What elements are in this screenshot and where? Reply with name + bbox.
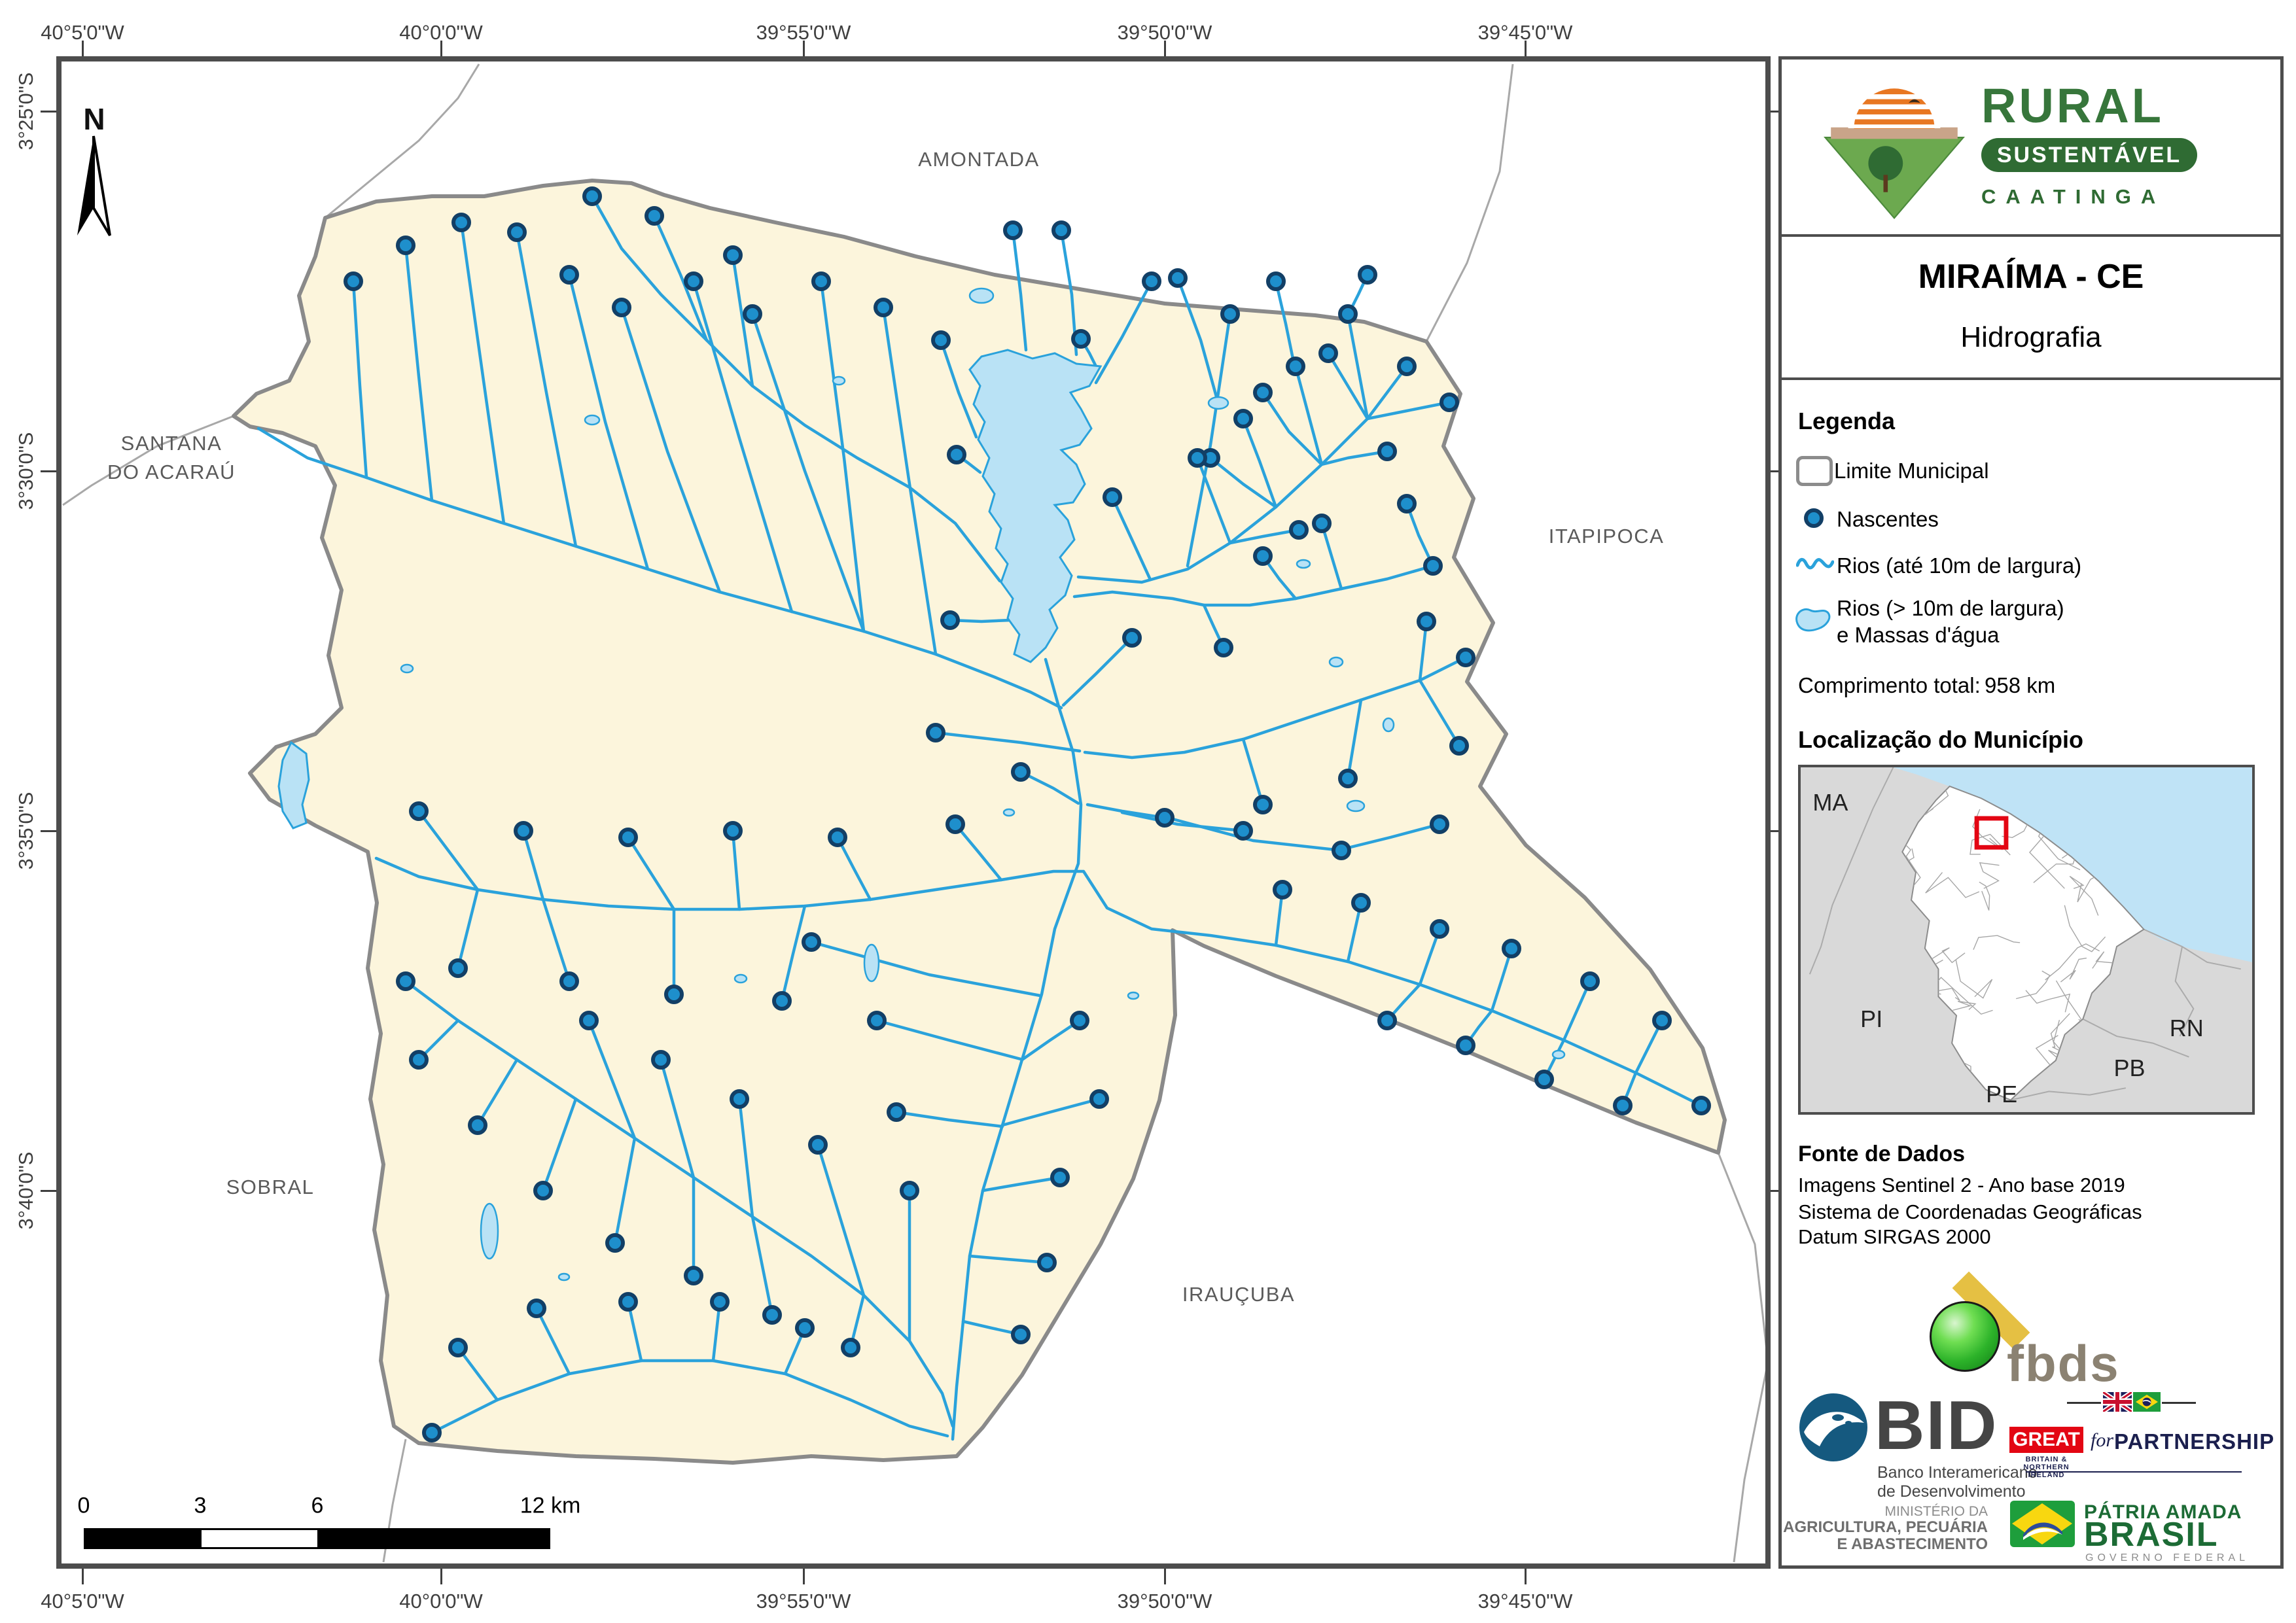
flag-divider-line [2162, 1402, 2196, 1404]
pond [1004, 809, 1014, 816]
nascente-dot [686, 273, 701, 289]
locator-state-label: PB [2114, 1055, 2146, 1082]
nascente-dot [1340, 306, 1356, 322]
pond [1128, 992, 1139, 999]
nascente-dot [1432, 816, 1447, 832]
rural-logo-tag: CAATINGA [1981, 185, 2165, 209]
nascente-dot [1104, 489, 1120, 505]
bid-logo-name: BID [1875, 1393, 1998, 1458]
fonte-line: Imagens Sentinel 2 - Ano base 2019 [1798, 1174, 2125, 1197]
nascente-dot [345, 273, 361, 289]
y-tick-left [41, 111, 56, 113]
nascente-dot [1654, 1013, 1670, 1028]
y-axis-label: 3°25'0"S [14, 73, 38, 150]
page-title: MIRAÍMA - CE [1782, 257, 2280, 296]
rios-icon [1796, 554, 1834, 574]
nascente-dot [686, 1268, 701, 1283]
x-axis-label-bottom: 40°0'0"W [399, 1590, 483, 1613]
nascente-dot [1399, 358, 1415, 374]
massas-dagua-icon [1792, 601, 1833, 642]
brazil-flag-icon [2133, 1392, 2161, 1412]
pond [1209, 397, 1228, 409]
limite-municipal-icon [1796, 456, 1833, 486]
x-tick-bottom [803, 1569, 805, 1584]
fonte-header: Fonte de Dados [1798, 1142, 1965, 1167]
info-panel: RURAL SUSTENTÁVEL CAATINGA MIRAÍMA - CE … [1778, 56, 2284, 1569]
nascente-dot [830, 829, 845, 845]
nascente-dot [949, 447, 964, 462]
ministerio-block: MINISTÉRIO DA AGRICULTURA, PECUÁRIA E AB… [1783, 1504, 1988, 1553]
legend-item-label: Nascentes [1837, 507, 1939, 532]
nascente-dot [607, 1235, 623, 1251]
nascente-dot [1255, 548, 1271, 564]
nascente-dot [561, 267, 577, 283]
pond [1347, 801, 1364, 811]
nascente-dot [1216, 640, 1231, 655]
nascente-dot [1275, 882, 1290, 898]
great-logo-word: GREAT [2009, 1427, 2083, 1453]
fbds-logo-sphere [1930, 1301, 2000, 1372]
total-length-value: 958 km [1985, 673, 2055, 698]
rural-logo-word: RURAL [1981, 82, 2164, 130]
pond [481, 1204, 498, 1259]
pond [585, 415, 599, 425]
scale-bar [84, 1528, 550, 1549]
nascente-dot [1340, 771, 1356, 786]
nascente-dot [1291, 522, 1307, 538]
nascente-dot [1053, 222, 1069, 238]
scale-label: 3 [194, 1493, 207, 1519]
neighbor-label: SANTANA DO ACARAÚ [107, 429, 236, 487]
nascente-dot [1399, 496, 1415, 512]
x-tick-top [82, 41, 84, 56]
nascente-dot [584, 188, 600, 204]
x-tick-bottom [440, 1569, 442, 1584]
nascente-dot [725, 823, 741, 839]
pond [735, 975, 747, 983]
nascente-dot [666, 986, 682, 1002]
nascente-dot [1013, 1327, 1029, 1342]
nascente-dot [1144, 273, 1159, 289]
nascente-dot [1314, 515, 1330, 531]
nascente-dot [928, 725, 944, 741]
nascente-dot [535, 1183, 551, 1198]
flag-divider-line [2067, 1402, 2101, 1404]
north-arrow-icon [71, 131, 116, 242]
nascente-dot [1235, 411, 1251, 427]
neighbor-label: SOBRAL [226, 1173, 315, 1202]
nascente-dot [614, 300, 629, 315]
legend-header: Legenda [1798, 408, 1895, 435]
locator-state-label: MA [1812, 789, 1848, 816]
nascente-dot [1333, 843, 1349, 858]
nascente-dot [1268, 273, 1284, 289]
nascente-dot [646, 208, 662, 224]
scale-seg [86, 1530, 202, 1547]
nascente-dot [509, 224, 525, 240]
nascentes-icon [1801, 506, 1826, 531]
nascente-dot [620, 1294, 636, 1310]
nascente-dot [1693, 1098, 1709, 1113]
nascente-dot [1235, 823, 1251, 839]
pond [401, 665, 413, 672]
nascente-dot [889, 1104, 904, 1120]
nascente-dot [804, 934, 819, 950]
rural-logo-sub: SUSTENTÁVEL [1981, 138, 2197, 172]
y-axis-label: 3°35'0"S [14, 792, 38, 870]
nascente-dot [1157, 810, 1173, 826]
pond [559, 1274, 569, 1280]
locator-state-label: RN [2170, 1015, 2204, 1042]
nascente-dot [450, 960, 466, 976]
nascente-dot [1582, 973, 1598, 989]
y-tick-left [41, 1190, 56, 1192]
great-rule [2026, 1471, 2242, 1473]
fonte-line: Sistema de Coordenadas Geográficas [1798, 1200, 2142, 1224]
pond [864, 945, 879, 981]
map-poster: 40°5'0"W40°5'0"W40°0'0"W40°0'0"W39°55'0"… [0, 0, 2296, 1623]
pond [970, 288, 993, 303]
x-axis-label-bottom: 39°45'0"W [1478, 1590, 1573, 1613]
nascente-dot [813, 273, 829, 289]
nascente-dot [1091, 1091, 1107, 1107]
nascente-dot [869, 1013, 885, 1028]
brasil-gov-flag-icon [2010, 1501, 2075, 1547]
nascente-dot [453, 215, 469, 230]
pond [1553, 1051, 1564, 1058]
nascente-dot [470, 1117, 486, 1133]
nascente-dot [581, 1013, 597, 1028]
nascente-dot [1255, 385, 1271, 400]
nascente-dot [942, 612, 958, 628]
nascente-dot [1255, 797, 1271, 812]
nascente-dot [1458, 650, 1474, 665]
ministerio-line2: AGRICULTURA, PECUÁRIA [1783, 1519, 1988, 1536]
nascente-dot [1379, 1013, 1395, 1028]
nascente-dot [764, 1307, 780, 1323]
ceara-locator [1801, 767, 2252, 1112]
x-axis-label-bottom: 39°50'0"W [1118, 1590, 1212, 1613]
neighbor-label: ITAPIPOCA [1549, 522, 1665, 551]
nascente-dot [1425, 558, 1441, 574]
nascente-dot [1190, 450, 1205, 466]
nascente-dot [725, 247, 741, 263]
nascente-dot [712, 1294, 728, 1310]
nascente-dot [1504, 941, 1519, 956]
nascente-dot [424, 1425, 440, 1440]
nascente-dot [843, 1340, 858, 1355]
scale-label: 6 [311, 1493, 324, 1519]
nascente-dot [933, 332, 949, 348]
neighbor-label: AMONTADA [918, 145, 1039, 174]
nascente-dot [732, 1091, 747, 1107]
nascente-dot [1005, 222, 1021, 238]
governo-federal-line: GOVERNO FEDERAL [2085, 1552, 2249, 1564]
pond [1297, 560, 1310, 568]
nascente-dot [810, 1137, 826, 1153]
bid-logo-icon [1797, 1391, 1869, 1463]
nascente-dot [1353, 895, 1369, 911]
brasil-line: BRASIL [2084, 1518, 2219, 1551]
x-tick-top [1525, 41, 1527, 56]
nascente-dot [774, 993, 790, 1009]
nascente-dot [1451, 738, 1467, 754]
bid-org-line2: de Desenvolvimento [1877, 1482, 2026, 1501]
nascente-dot [797, 1320, 813, 1336]
pond [1330, 657, 1343, 667]
hydrography-map [62, 61, 1765, 1563]
nascente-dot [1124, 630, 1140, 646]
total-length-label: Comprimento total: [1798, 673, 1981, 698]
nascente-dot [1458, 1038, 1474, 1053]
x-tick-bottom [1525, 1569, 1527, 1584]
divider [1782, 377, 2280, 380]
nascente-dot [1013, 764, 1029, 780]
great-logo-for: for [2091, 1429, 2113, 1452]
scale-seg [317, 1530, 549, 1547]
locator-map: MAPIRNPBPE [1798, 765, 2255, 1115]
fonte-line: Datum SIRGAS 2000 [1798, 1225, 1991, 1249]
map-frame [56, 56, 1771, 1569]
ministerio-line1: MINISTÉRIO DA [1783, 1504, 1988, 1519]
y-axis-label: 3°30'0"S [14, 432, 38, 510]
nascente-dot [411, 1052, 427, 1068]
nascente-dot [1073, 331, 1089, 347]
nascente-dot [1441, 394, 1457, 410]
nascente-dot [561, 973, 577, 989]
legend-item-label2: e Massas d'água [1837, 623, 1999, 648]
pond [1383, 718, 1394, 731]
scale-seg [202, 1530, 317, 1547]
nascente-dot [1072, 1013, 1087, 1028]
neighbor-boundary [1426, 64, 1513, 341]
x-tick-bottom [82, 1569, 84, 1584]
logo-section: RURAL SUSTENTÁVEL CAATINGA [1782, 60, 2280, 234]
nascente-dot [529, 1300, 544, 1316]
nascente-dot [1039, 1255, 1055, 1270]
nascente-dot [1615, 1098, 1631, 1113]
x-tick-top [440, 41, 442, 56]
nascente-dot [1432, 921, 1447, 937]
x-axis-label-bottom: 40°5'0"W [41, 1590, 124, 1613]
x-axis-label-bottom: 39°55'0"W [756, 1590, 851, 1613]
y-tick-left [41, 470, 56, 472]
nascente-dot [1360, 267, 1375, 283]
ministerio-line3: E ABASTECIMENTO [1783, 1536, 1988, 1553]
nascente-dot [1288, 358, 1303, 374]
nascente-dot [1222, 306, 1238, 322]
nascente-dot [1320, 345, 1336, 361]
x-tick-bottom [1164, 1569, 1166, 1584]
scale-label: 0 [78, 1493, 90, 1519]
y-axis-label: 3°40'0"S [14, 1152, 38, 1230]
x-tick-top [1164, 41, 1166, 56]
nascente-dot [398, 237, 414, 253]
nascente-dot [1170, 270, 1186, 286]
legend-item-label: Rios (> 10m de largura) [1837, 596, 2064, 621]
nascente-dot [902, 1183, 917, 1198]
nascente-dot [1419, 614, 1434, 629]
great-logo-subtitle: BRITAIN & NORTHERN IRELAND [2009, 1456, 2083, 1479]
nascente-dot [653, 1052, 669, 1068]
uk-flag-icon [2103, 1392, 2132, 1412]
scale-label: 12 km [520, 1493, 581, 1519]
divider [1782, 234, 2280, 237]
nascente-dot [620, 829, 636, 845]
great-logo-partnership: PARTNERSHIP [2114, 1429, 2274, 1454]
legend-item-label: Rios (até 10m de largura) [1837, 553, 2081, 578]
page-subtitle: Hidrografia [1782, 321, 2280, 354]
legend-item-label: Limite Municipal [1834, 459, 1989, 483]
nascente-dot [411, 803, 427, 819]
location-header: Localização do Município [1798, 726, 2083, 754]
nascente-dot [398, 973, 414, 989]
nascente-dot [875, 300, 891, 315]
y-tick-left [41, 830, 56, 832]
x-tick-top [803, 41, 805, 56]
locator-state-label: PI [1860, 1005, 1882, 1033]
nascente-dot [1052, 1170, 1068, 1185]
nascente-dot [516, 823, 531, 839]
neighbor-label: IRAUÇUBA [1182, 1280, 1295, 1309]
neighbor-boundary [1718, 1153, 1765, 1562]
rural-sustentavel-logo-icon [1822, 74, 1966, 221]
locator-state-label: PE [1986, 1081, 2017, 1108]
nascente-dot [745, 306, 760, 322]
nascente-dot [1536, 1072, 1552, 1087]
nascente-dot [450, 1340, 466, 1355]
fbds-logo-text: fbds [2007, 1334, 2120, 1393]
nascente-dot [947, 816, 963, 832]
nascente-dot [1379, 444, 1395, 459]
pond [833, 377, 845, 385]
